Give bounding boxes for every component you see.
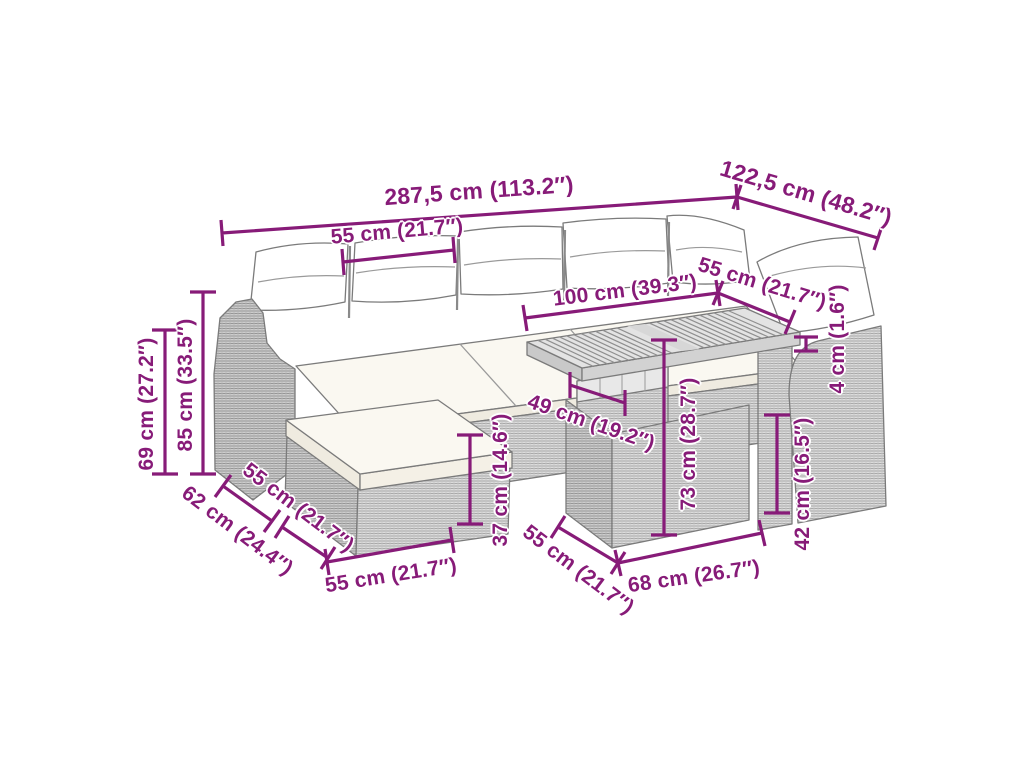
back-cushion-3 xyxy=(459,226,563,295)
dim-label-tabletop-thickness: 4 cm (1.6″) xyxy=(826,284,850,393)
dim-label-frame-height: 69 cm (27.2″) xyxy=(135,338,159,471)
diagram-canvas: 287,5 cm (113.2″) 122,5 cm (48.2″) 55 cm… xyxy=(0,0,1024,768)
dim-label-seat-height: 37 cm (14.6″) xyxy=(489,414,513,547)
armchair-body xyxy=(758,336,792,530)
dim-label-total-height: 85 cm (33.5″) xyxy=(174,319,198,452)
dim-label-chair-seat-height: 42 cm (16.5″) xyxy=(791,418,815,551)
dim-label-table-height: 73 cm (28.7″) xyxy=(677,378,701,511)
